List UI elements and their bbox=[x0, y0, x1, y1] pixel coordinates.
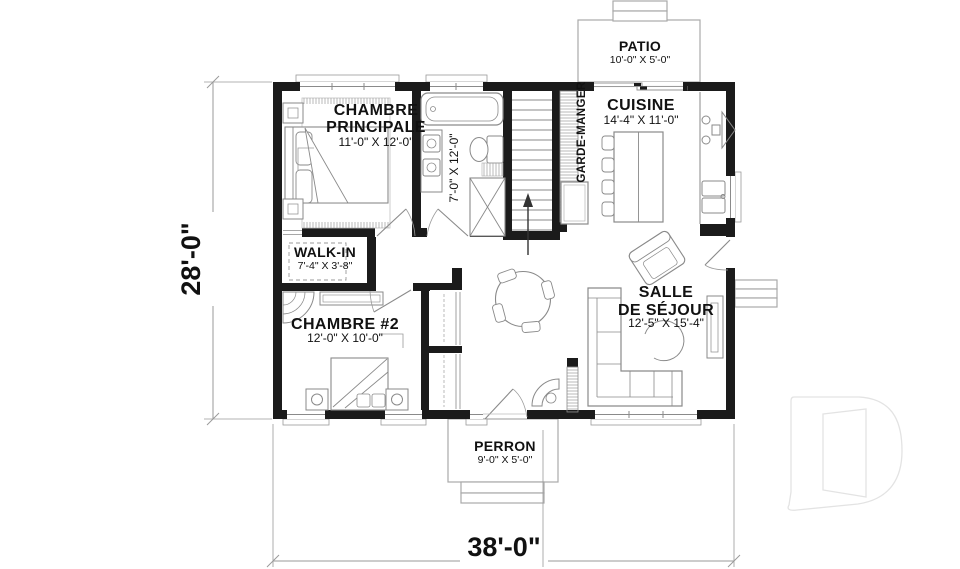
pantry-label: GARDE-MANGER bbox=[576, 81, 588, 183]
side-step bbox=[735, 280, 777, 289]
refrigerator-icon bbox=[561, 182, 588, 224]
master-bedroom-label2: PRINCIPALE bbox=[326, 119, 426, 136]
bed-icon bbox=[331, 358, 388, 410]
walk-in-dims: 7'-4" X 3'-8" bbox=[298, 260, 353, 272]
vanity-double-sink-icon bbox=[421, 130, 442, 192]
perron-step bbox=[461, 482, 544, 493]
overall-width-dim: 38'-0" bbox=[467, 532, 540, 562]
side-step bbox=[735, 289, 777, 298]
bedroom2-dims: 12'-0" X 10'-0" bbox=[307, 331, 383, 345]
kitchen-dims: 14'-4" X 11'-0" bbox=[604, 113, 679, 127]
patio-step bbox=[613, 11, 667, 21]
kitchen-sink-icon bbox=[702, 181, 725, 213]
fan-chair-icon bbox=[532, 379, 559, 406]
patio-step bbox=[613, 1, 667, 11]
stair-direction-arrow-icon bbox=[523, 193, 533, 255]
entry-furniture bbox=[532, 358, 578, 412]
living-room-label: SALLE bbox=[639, 284, 693, 301]
console-shelf-icon bbox=[567, 358, 578, 412]
shower-icon bbox=[470, 178, 505, 236]
side-step bbox=[735, 298, 777, 307]
linen-shelf bbox=[482, 163, 503, 176]
master-bedroom-dims: 11'-0" X 12'-0" bbox=[339, 135, 414, 149]
dresser-icon bbox=[320, 292, 383, 305]
bathroom-fixtures bbox=[421, 93, 505, 236]
walk-in-label: WALK-IN bbox=[294, 244, 356, 260]
toilet-icon bbox=[470, 136, 503, 163]
builder-d-logo-watermark-icon bbox=[788, 397, 902, 510]
bedroom2-furniture bbox=[283, 292, 408, 410]
patio-label: PATIO bbox=[619, 38, 661, 54]
overall-height-dim: 28'-0" bbox=[176, 222, 206, 295]
exterior-structures bbox=[448, 1, 777, 503]
living-room-dims: 12'-5" X 15'-4" bbox=[628, 316, 704, 330]
bathroom-dims: 7'-0" X 12'-0" bbox=[447, 133, 461, 202]
bathtub-icon bbox=[421, 93, 503, 125]
patio-dims: 10'-0" X 5'-0" bbox=[610, 54, 671, 66]
porch-dims: 9'-0" X 5'-0" bbox=[478, 454, 533, 466]
perron-step bbox=[461, 493, 544, 503]
armchair-icon bbox=[627, 230, 686, 287]
dining-set bbox=[492, 268, 555, 333]
kitchen-label: CUISINE bbox=[607, 97, 675, 114]
floor-plan-canvas: CHAMBRE PRINCIPALE 11'-0" X 12'-0" 7'-0"… bbox=[0, 0, 960, 569]
porch-label: PERRON bbox=[474, 438, 536, 454]
master-bedroom-label: CHAMBRE bbox=[334, 102, 419, 119]
label-leader bbox=[380, 334, 403, 348]
bar-stool-icon bbox=[602, 136, 614, 216]
floor-plan-drawing: CHAMBRE PRINCIPALE 11'-0" X 12'-0" 7'-0"… bbox=[0, 0, 960, 569]
